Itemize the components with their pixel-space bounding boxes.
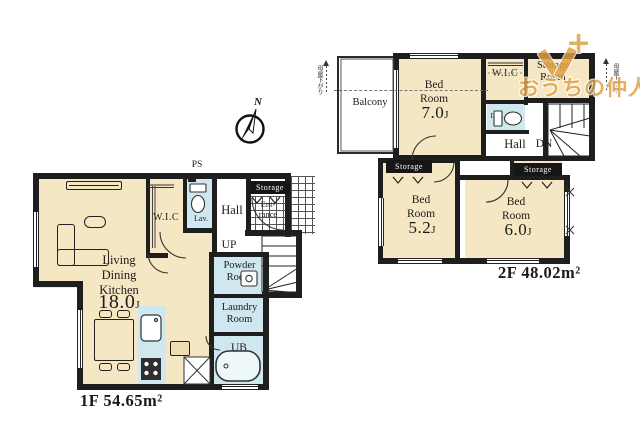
watermark-brand-text: おうちの仲人 bbox=[518, 72, 640, 102]
closet-chevrons bbox=[252, 197, 280, 203]
stairs-icon bbox=[262, 236, 298, 292]
stove-icon bbox=[141, 358, 161, 380]
compass-north-label: N bbox=[250, 96, 266, 109]
shutter-marks bbox=[566, 188, 574, 234]
sink-icon bbox=[141, 315, 161, 341]
door-arcs bbox=[412, 136, 508, 202]
bathtub-icon bbox=[216, 351, 260, 381]
toilet-icon bbox=[494, 111, 522, 126]
floor1-graphics bbox=[30, 160, 320, 400]
watermark: + おうちの仲人 bbox=[518, 30, 640, 100]
toilet-icon bbox=[190, 184, 206, 213]
washbasin-icon bbox=[241, 271, 257, 286]
balcony-inner-line bbox=[341, 59, 393, 151]
floorplan-canvas: Storage PS W.I.C Lav. Hall Ent- rance UP… bbox=[0, 0, 640, 441]
refrigerator-icon bbox=[184, 357, 210, 384]
closet-chevrons bbox=[393, 177, 552, 188]
stairs-icon bbox=[548, 104, 590, 156]
door-arcs bbox=[148, 198, 284, 350]
